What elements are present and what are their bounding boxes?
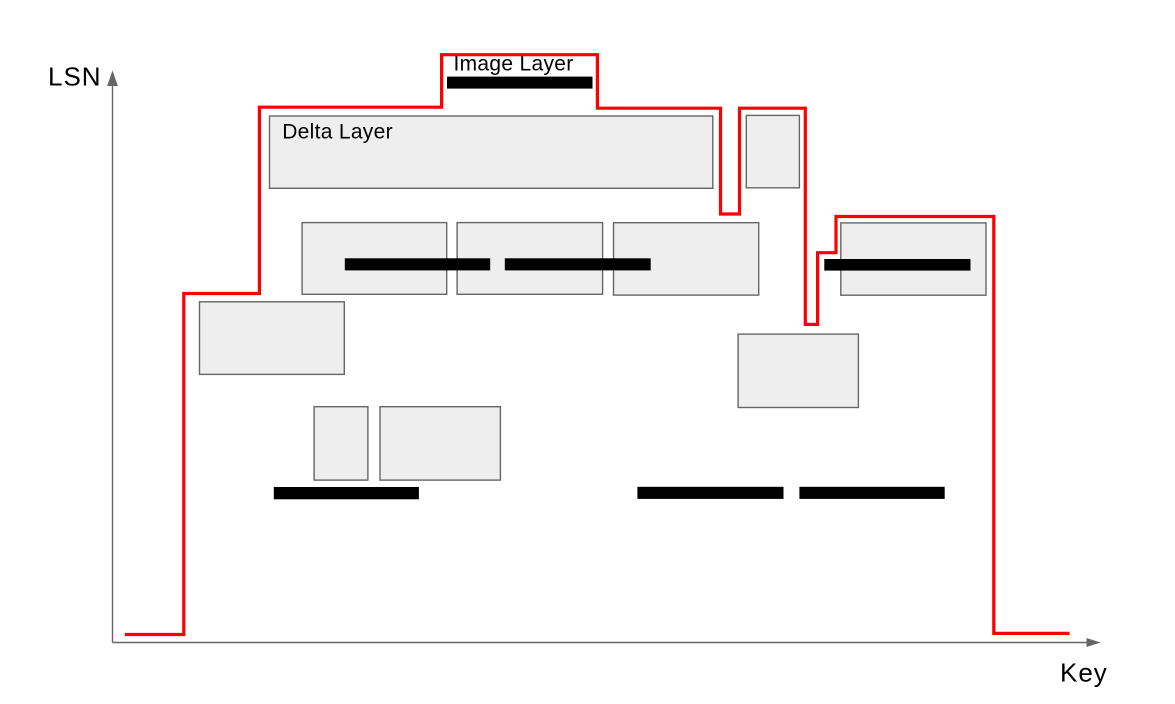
svg-text:LSN: LSN [48,62,102,92]
svg-text:Key: Key [1060,658,1108,688]
svg-text:Delta Layer: Delta Layer [282,121,393,144]
